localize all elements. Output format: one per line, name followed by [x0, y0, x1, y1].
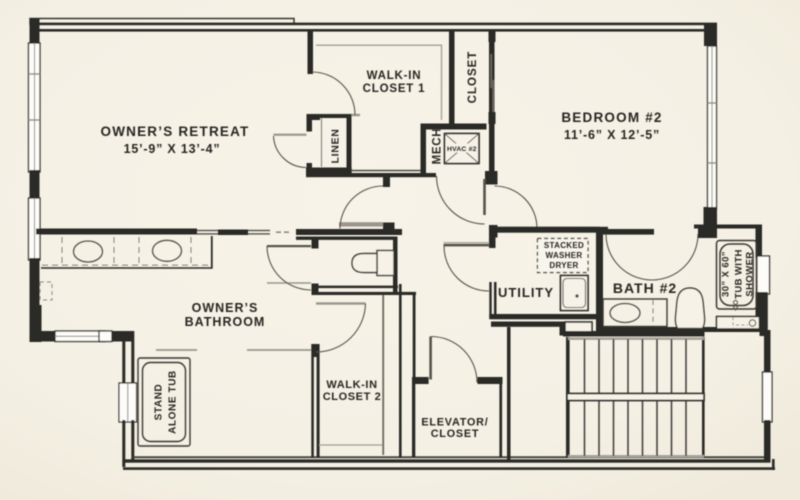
- svg-text:MECH: MECH: [432, 128, 444, 165]
- svg-text:UTILITY: UTILITY: [498, 285, 554, 300]
- svg-text:ALONE TUB: ALONE TUB: [168, 370, 179, 434]
- svg-text:CLOSET 2: CLOSET 2: [323, 391, 382, 403]
- svg-text:15’-9” X 13’-4”: 15’-9” X 13’-4”: [124, 142, 221, 156]
- svg-text:CLOSET: CLOSET: [431, 428, 480, 440]
- svg-text:LINEN: LINEN: [330, 129, 342, 164]
- svg-text:OWNER’S RETREAT: OWNER’S RETREAT: [101, 124, 250, 139]
- svg-text:WALK-IN: WALK-IN: [326, 379, 377, 391]
- svg-text:11’-6” X 12’-5”: 11’-6” X 12’-5”: [564, 128, 660, 142]
- svg-text:STAND: STAND: [154, 384, 165, 421]
- svg-text:ELEVATOR/: ELEVATOR/: [421, 417, 488, 429]
- svg-text:HVAC #2: HVAC #2: [447, 146, 477, 153]
- svg-text:BATH #2: BATH #2: [613, 280, 677, 296]
- svg-text:30” X 60”: 30” X 60”: [721, 251, 732, 297]
- svg-text:CLOSET 1: CLOSET 1: [363, 83, 426, 95]
- svg-text:STACKED: STACKED: [544, 241, 584, 250]
- svg-text:CLOSET: CLOSET: [467, 51, 479, 104]
- svg-text:SHOWER: SHOWER: [745, 251, 756, 296]
- svg-text:BEDROOM #2: BEDROOM #2: [561, 110, 662, 125]
- svg-text:DRYER: DRYER: [549, 261, 578, 270]
- svg-text:WASHER: WASHER: [546, 251, 583, 260]
- svg-text:OWNER’S: OWNER’S: [192, 301, 259, 315]
- svg-text:TUB WITH: TUB WITH: [734, 249, 745, 299]
- svg-text:WALK-IN: WALK-IN: [367, 70, 422, 82]
- svg-text:BATHROOM: BATHROOM: [185, 315, 266, 329]
